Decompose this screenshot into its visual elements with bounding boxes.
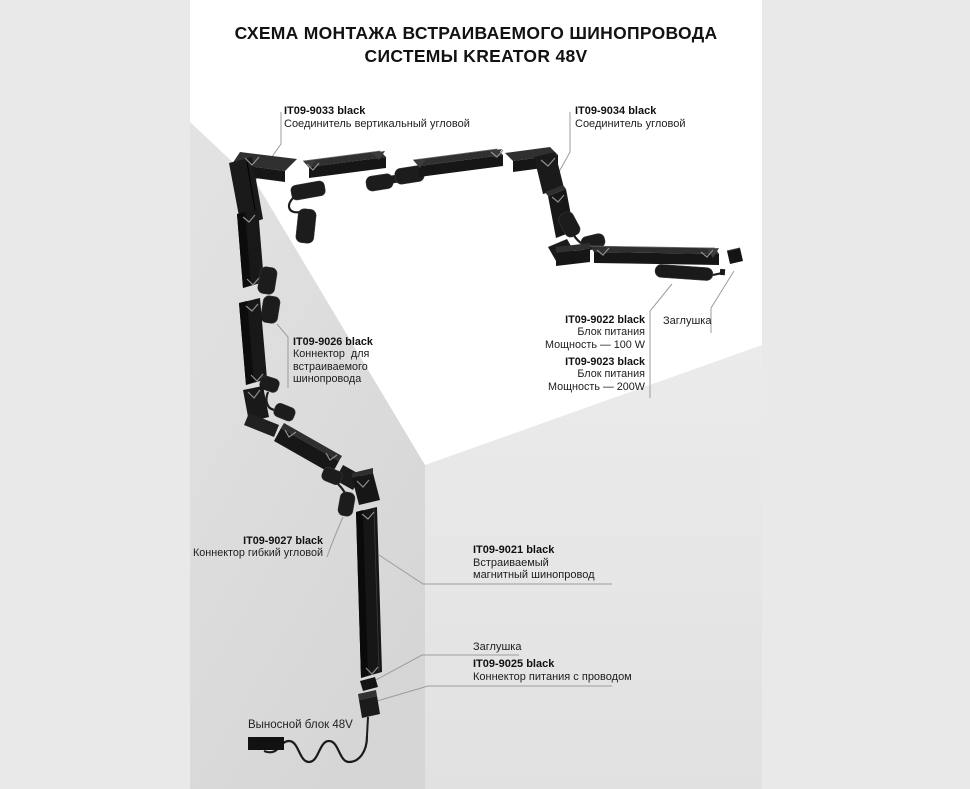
part-desc-9021-1: Встраиваемый xyxy=(473,557,549,569)
part-code-9022: IT09-9022 black xyxy=(565,314,645,326)
part-desc-9025: Коннектор питания с проводом xyxy=(473,671,632,683)
horizontal-track-right xyxy=(590,246,719,265)
part-desc-9026-3: шинопровода xyxy=(293,373,361,385)
part-code-9026: IT09-9026 black xyxy=(293,336,373,348)
label-it09-9026: IT09-9026 blackКоннектор длявстраиваемог… xyxy=(293,336,373,385)
part-desc-9027: Коннектор гибкий угловой xyxy=(193,547,323,559)
label-plug-bottom: Заглушка xyxy=(473,641,521,654)
part-desc-9034: Соединитель угловой xyxy=(575,118,686,130)
part-desc-9022-1: Блок питания xyxy=(577,326,645,338)
part-code-9027: IT09-9027 black xyxy=(243,535,323,547)
part-code-9033: IT09-9033 black xyxy=(284,105,365,117)
remote-block-text: Выносной блок 48V xyxy=(248,719,353,731)
label-it09-9021: IT09-9021 blackВстраиваемыймагнитный шин… xyxy=(473,544,595,582)
part-code-9021: IT09-9021 black xyxy=(473,544,554,556)
label-remote-block: Выносной блок 48V xyxy=(248,719,353,732)
part-code-9034: IT09-9034 black xyxy=(575,105,656,117)
plug-right-text: Заглушка xyxy=(663,315,711,327)
label-it09-9027: IT09-9027 blackКоннектор гибкий угловой xyxy=(186,535,323,560)
label-it09-9023: IT09-9023 blackБлок питанияМощность — 20… xyxy=(505,356,645,393)
part-desc-9026-2: встраиваемого xyxy=(293,361,368,373)
title-line-2: СИСТЕМЫ KREATOR 48V xyxy=(365,46,588,66)
part-desc-9021-2: магнитный шинопровод xyxy=(473,569,595,581)
label-it09-9022: IT09-9022 blackБлок питанияМощность — 10… xyxy=(505,314,645,351)
page-title: СХЕМА МОНТАЖА ВСТРАИВАЕМОГО ШИНОПРОВОДАС… xyxy=(190,22,762,67)
installation-diagram: СХЕМА МОНТАЖА ВСТРАИВАЕМОГО ШИНОПРОВОДАС… xyxy=(0,0,970,789)
part-desc-9026-1: Коннектор для xyxy=(293,348,369,360)
plug-bottom-text: Заглушка xyxy=(473,641,521,653)
part-desc-9023-1: Блок питания xyxy=(577,368,645,380)
label-it09-9025: IT09-9025 blackКоннектор питания с прово… xyxy=(473,658,632,683)
part-code-9023: IT09-9023 black xyxy=(565,356,645,368)
part-code-9025: IT09-9025 black xyxy=(473,658,554,670)
part-desc-9023-2: Мощность — 200W xyxy=(548,381,645,393)
title-line-1: СХЕМА МОНТАЖА ВСТРАИВАЕМОГО ШИНОПРОВОДА xyxy=(235,23,718,43)
label-it09-9033: IT09-9033 blackСоединитель вертикальный … xyxy=(284,105,470,131)
label-plug-right: Заглушка xyxy=(663,315,711,328)
label-it09-9034: IT09-9034 blackСоединитель угловой xyxy=(575,105,686,131)
remote-driver-block xyxy=(248,737,284,750)
part-desc-9022-2: Мощность — 100 W xyxy=(545,339,645,351)
part-desc-9033: Соединитель вертикальный угловой xyxy=(284,118,470,130)
